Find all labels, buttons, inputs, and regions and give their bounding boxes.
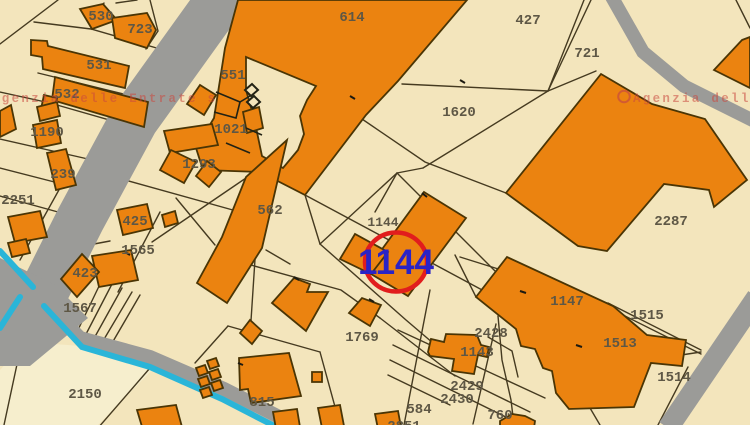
svg-text:1144: 1144 (358, 243, 434, 282)
svg-text:1293: 1293 (182, 157, 216, 173)
svg-text:Agenzia delle Entrate s: Agenzia delle Entrate s (0, 92, 217, 106)
svg-text:1144: 1144 (367, 215, 398, 230)
svg-text:1769: 1769 (345, 330, 379, 346)
svg-text:584: 584 (406, 402, 431, 418)
svg-text:2251: 2251 (1, 193, 35, 209)
svg-text:760: 760 (487, 408, 512, 424)
svg-text:721: 721 (574, 46, 599, 62)
svg-text:1143: 1143 (460, 345, 494, 361)
svg-text:239: 239 (50, 167, 75, 183)
svg-text:Agenzia delle E: Agenzia delle E (633, 92, 750, 106)
svg-text:2287: 2287 (654, 214, 688, 230)
svg-text:2430: 2430 (440, 392, 474, 408)
svg-text:1514: 1514 (657, 370, 691, 386)
svg-text:2851: 2851 (387, 419, 421, 425)
svg-text:614: 614 (339, 10, 364, 26)
svg-text:551: 551 (220, 68, 245, 84)
svg-text:2428: 2428 (474, 326, 508, 342)
svg-text:562: 562 (257, 203, 282, 219)
svg-text:815: 815 (249, 395, 274, 411)
svg-text:1620: 1620 (442, 105, 476, 121)
svg-text:1567: 1567 (63, 301, 97, 317)
svg-text:1515: 1515 (630, 308, 664, 324)
svg-text:423: 423 (72, 266, 97, 282)
svg-text:1565: 1565 (121, 243, 155, 259)
svg-text:530: 530 (88, 9, 113, 25)
svg-text:1513: 1513 (603, 336, 637, 352)
svg-text:427: 427 (515, 13, 540, 29)
svg-text:1190: 1190 (30, 125, 64, 141)
svg-text:531: 531 (86, 58, 111, 74)
svg-text:1147: 1147 (550, 294, 584, 310)
svg-text:723: 723 (127, 22, 152, 38)
svg-text:1021: 1021 (214, 122, 248, 138)
svg-text:425: 425 (122, 214, 147, 230)
svg-text:2150: 2150 (68, 387, 102, 403)
